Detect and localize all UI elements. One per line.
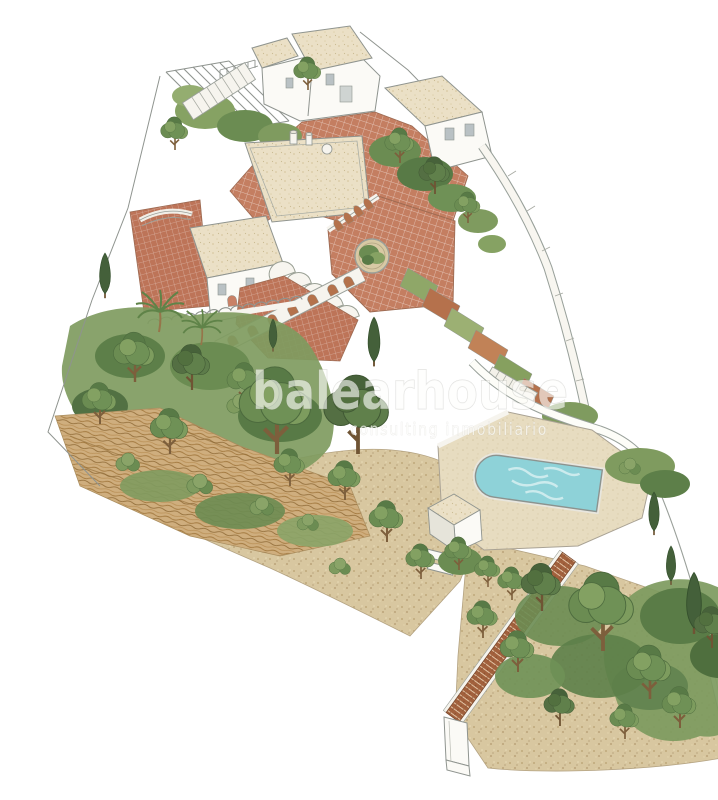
left-courtyard-slope (130, 200, 210, 312)
brand-watermark-text: balearhouse (252, 362, 568, 422)
round-planter (355, 239, 389, 273)
site-plan-illustration: balearhouse consulting inmobiliario (40, 16, 718, 784)
property-illustration: balearhouse consulting inmobiliario (40, 16, 718, 784)
tagline-watermark-text: consulting inmobiliario (350, 420, 548, 440)
